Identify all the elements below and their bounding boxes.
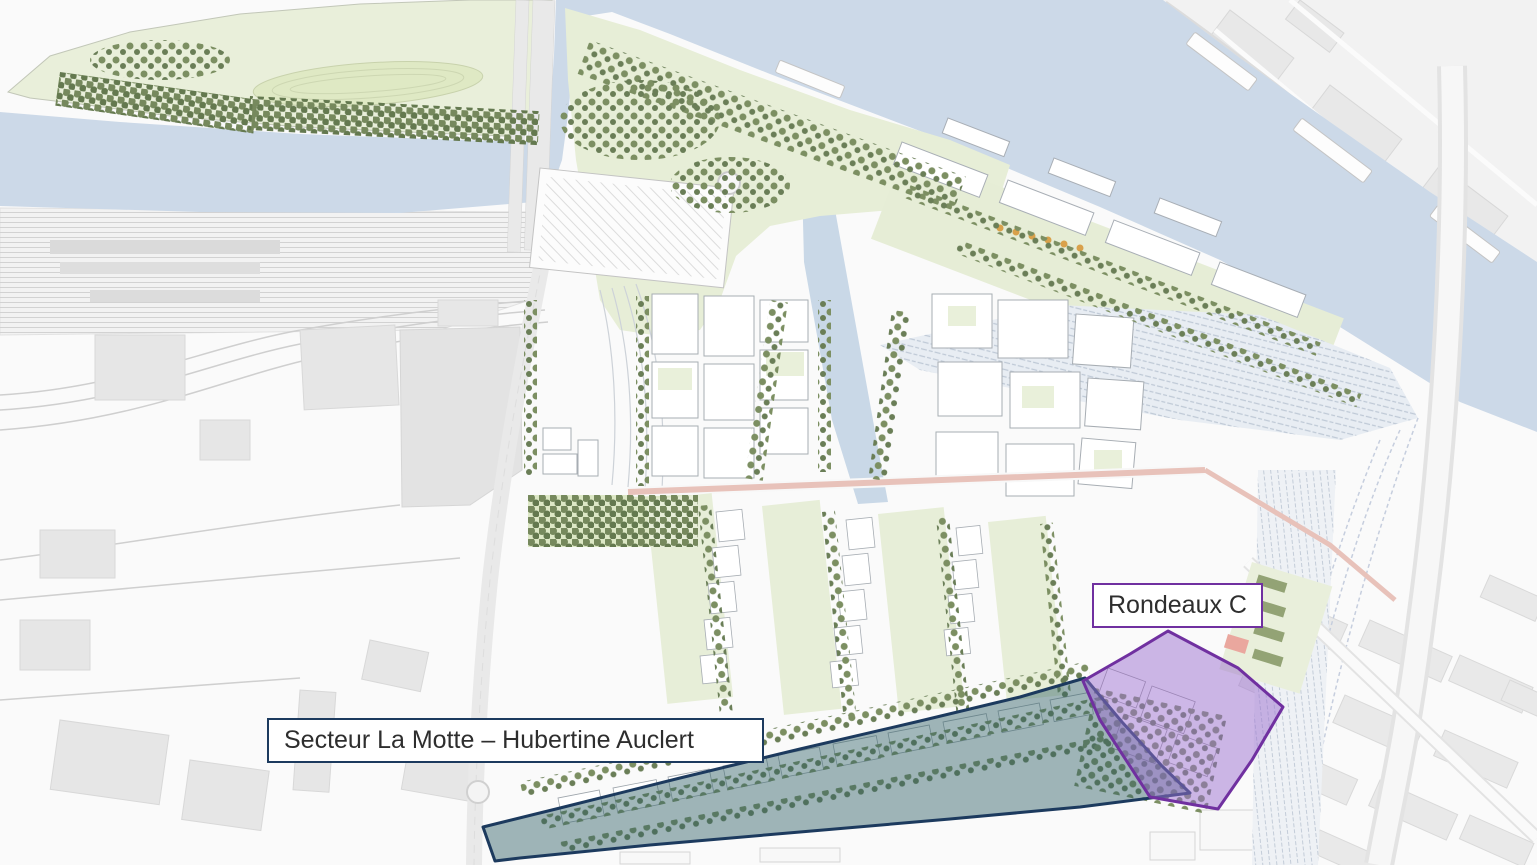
masterplan-map	[0, 0, 1537, 865]
masterplan-figure: Secteur La Motte – Hubertine Auclert Ron…	[0, 0, 1537, 865]
roundabout	[467, 781, 489, 803]
zone-label-secteur-la-motte: Secteur La Motte – Hubertine Auclert	[267, 718, 764, 763]
zone-label-rondeaux-c: Rondeaux C	[1092, 583, 1263, 628]
